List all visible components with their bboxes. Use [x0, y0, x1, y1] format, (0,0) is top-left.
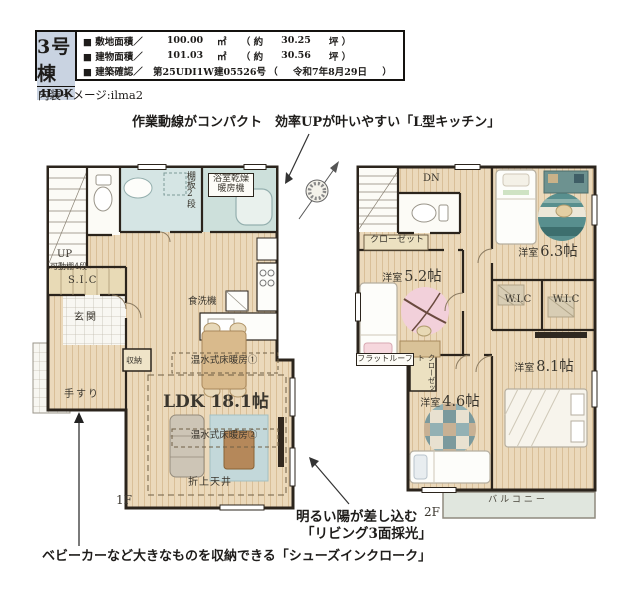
confirmation-number: 第25UDI1W建05526号 — [153, 64, 261, 78]
building-area-open: （ 約 — [237, 49, 267, 63]
room-6-3-name: 洋室 — [518, 248, 538, 259]
land-area-value: 100.00 — [153, 35, 217, 46]
label-flat-roof: フラットルーフ — [356, 353, 414, 366]
land-area-tsubo: 30.25 — [267, 35, 325, 46]
label-room-6-3: 洋室6.3帖 — [512, 242, 584, 261]
label-dishwasher: 食洗機 — [188, 297, 217, 307]
label-floor-heating-2: 温水式床暖房② — [172, 431, 276, 441]
label-wic-right: W.I.C — [544, 294, 588, 305]
label-ldk: LDK 18.1帖 — [150, 393, 282, 412]
sink — [124, 178, 152, 198]
label-closet: クローゼット — [366, 236, 428, 246]
spec-table-left: 3号棟 4LDK — [37, 32, 77, 79]
label-balcony: バルコニー — [468, 496, 568, 506]
label-floor-2f: 2F — [424, 506, 440, 519]
room-4-6-size: 4.6帖 — [442, 394, 480, 410]
building-name: 3号棟 — [37, 32, 75, 87]
room-5-2-name: 洋室 — [382, 273, 402, 284]
toilet-1f — [94, 175, 112, 211]
label-sic: S.I.C — [68, 275, 97, 286]
label-room-4-6: 洋室4.6帖 — [412, 392, 488, 411]
label-up: UP — [57, 249, 72, 260]
label-room-8-1: 洋室8.1帖 — [506, 357, 582, 376]
building-area-unit: ㎡ — [217, 49, 237, 63]
label-dn: DN — [423, 173, 440, 184]
room-4-6-name: 洋室 — [420, 398, 440, 409]
label-room-5-2: 洋室5.2帖 — [376, 267, 448, 286]
label-raised-ceiling: 折上天井 — [188, 477, 232, 488]
label-shelf-2tier: 棚板2段 — [184, 171, 194, 219]
living-note-line2: 「リビング3面採光」 — [301, 522, 432, 542]
room-8-1-name: 洋室 — [514, 363, 534, 374]
label-wic-left: W.I.C — [496, 294, 540, 305]
desk-6-3 — [544, 171, 588, 193]
spec-table-rows: ■ 敷地面積／ 100.00 ㎡ （ 約 30.25 坪 ） ■ 建物面積／ 1… — [77, 32, 403, 79]
bed-8-1 — [505, 389, 587, 447]
confirmation-date: 令和7年8月29日 — [285, 64, 375, 78]
building-area-label: ■ 建物面積／ — [83, 49, 153, 63]
label-storage: 収納 — [126, 357, 142, 366]
confirmation-label: ■ 建築確認／ — [83, 64, 153, 78]
label-bath-dryer: 浴室乾燥暖房機 — [208, 173, 254, 197]
floorplan-sheet: 3号棟 4LDK ■ 敷地面積／ 100.00 ㎡ （ 約 30.25 坪 ） … — [0, 0, 640, 598]
confirmation-open: （ — [261, 64, 285, 78]
building-area-tsubo: 30.56 — [267, 50, 325, 61]
sic-note-arrow-icon — [70, 408, 88, 550]
label-floor-1f: 1F — [116, 494, 132, 507]
sofa — [170, 415, 204, 477]
land-area-unit: ㎡ — [217, 34, 237, 48]
label-floor-heating-1: 温水式床暖房① — [172, 356, 276, 366]
spec-row-building: ■ 建物面積／ 101.03 ㎡ （ 約 30.56 坪 ） — [83, 49, 399, 63]
tv-board-2f — [535, 332, 587, 338]
bed-4-6 — [410, 451, 490, 483]
label-entrance: 玄関 — [74, 312, 98, 323]
sic-note: ベビーカーなど大きなものを収納できる「シューズインクローク」 — [42, 545, 431, 564]
bed-6-3 — [496, 170, 536, 244]
confirmation-close: ） — [375, 64, 399, 78]
label-movable-shelf: 可動棚4段 — [50, 263, 87, 272]
land-area-close: 坪 ） — [325, 34, 355, 48]
land-area-open: （ 約 — [237, 34, 267, 48]
compass-icon — [293, 155, 345, 227]
tv-board-1f — [278, 417, 284, 467]
interior-image-note: 内装イメージ:ilma2 — [38, 87, 143, 103]
label-closet-vertical: クローゼット — [410, 354, 436, 392]
room-5-2-size: 5.2帖 — [404, 269, 442, 285]
building-area-close: 坪 ） — [325, 49, 355, 63]
room-8-1-size: 8.1帖 — [536, 359, 574, 375]
spec-table: 3号棟 4LDK ■ 敷地面積／ 100.00 ㎡ （ 約 30.25 坪 ） … — [35, 30, 405, 81]
spec-row-confirmation: ■ 建築確認／ 第25UDI1W建05526号 （ 令和7年8月29日 ） — [83, 64, 399, 78]
land-area-label: ■ 敷地面積／ — [83, 34, 153, 48]
bed-5-2 — [360, 283, 397, 357]
rug-teal — [538, 193, 586, 241]
spec-row-land: ■ 敷地面積／ 100.00 ㎡ （ 約 30.25 坪 ） — [83, 34, 399, 48]
living-note-arrow-icon — [303, 452, 355, 508]
building-area-value: 101.03 — [153, 50, 217, 61]
label-handrail: 手すり — [64, 389, 100, 400]
kitchen-note: 作業動線がコンパクト 効率UPが叶いやすい「L型キッチン」 — [132, 111, 500, 130]
room-6-3-size: 6.3帖 — [540, 244, 578, 260]
floor2-plan-drawing — [352, 163, 600, 525]
toilet-2f — [412, 204, 448, 222]
